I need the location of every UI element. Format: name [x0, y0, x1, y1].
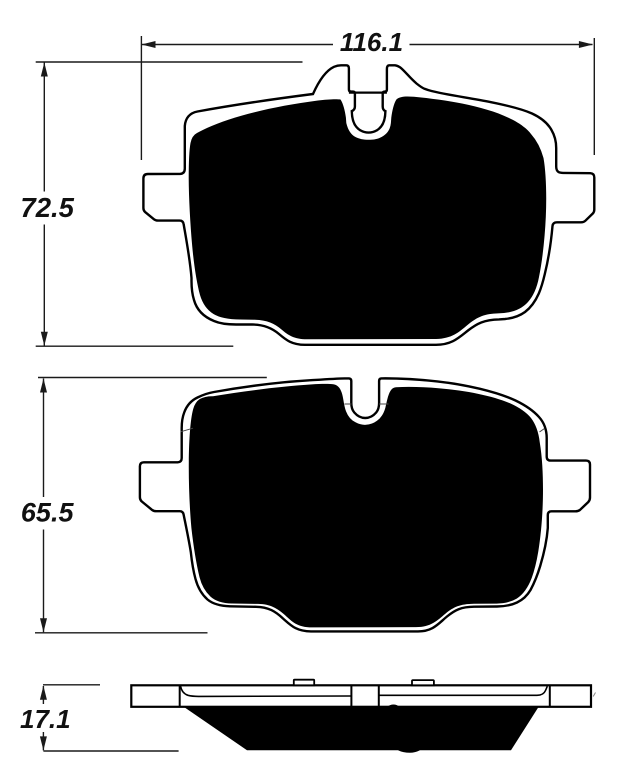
svg-text:17.1: 17.1 [20, 704, 71, 734]
svg-text:116.1: 116.1 [340, 27, 403, 57]
svg-text:65.5: 65.5 [21, 498, 75, 528]
svg-text:72.5: 72.5 [20, 192, 74, 223]
